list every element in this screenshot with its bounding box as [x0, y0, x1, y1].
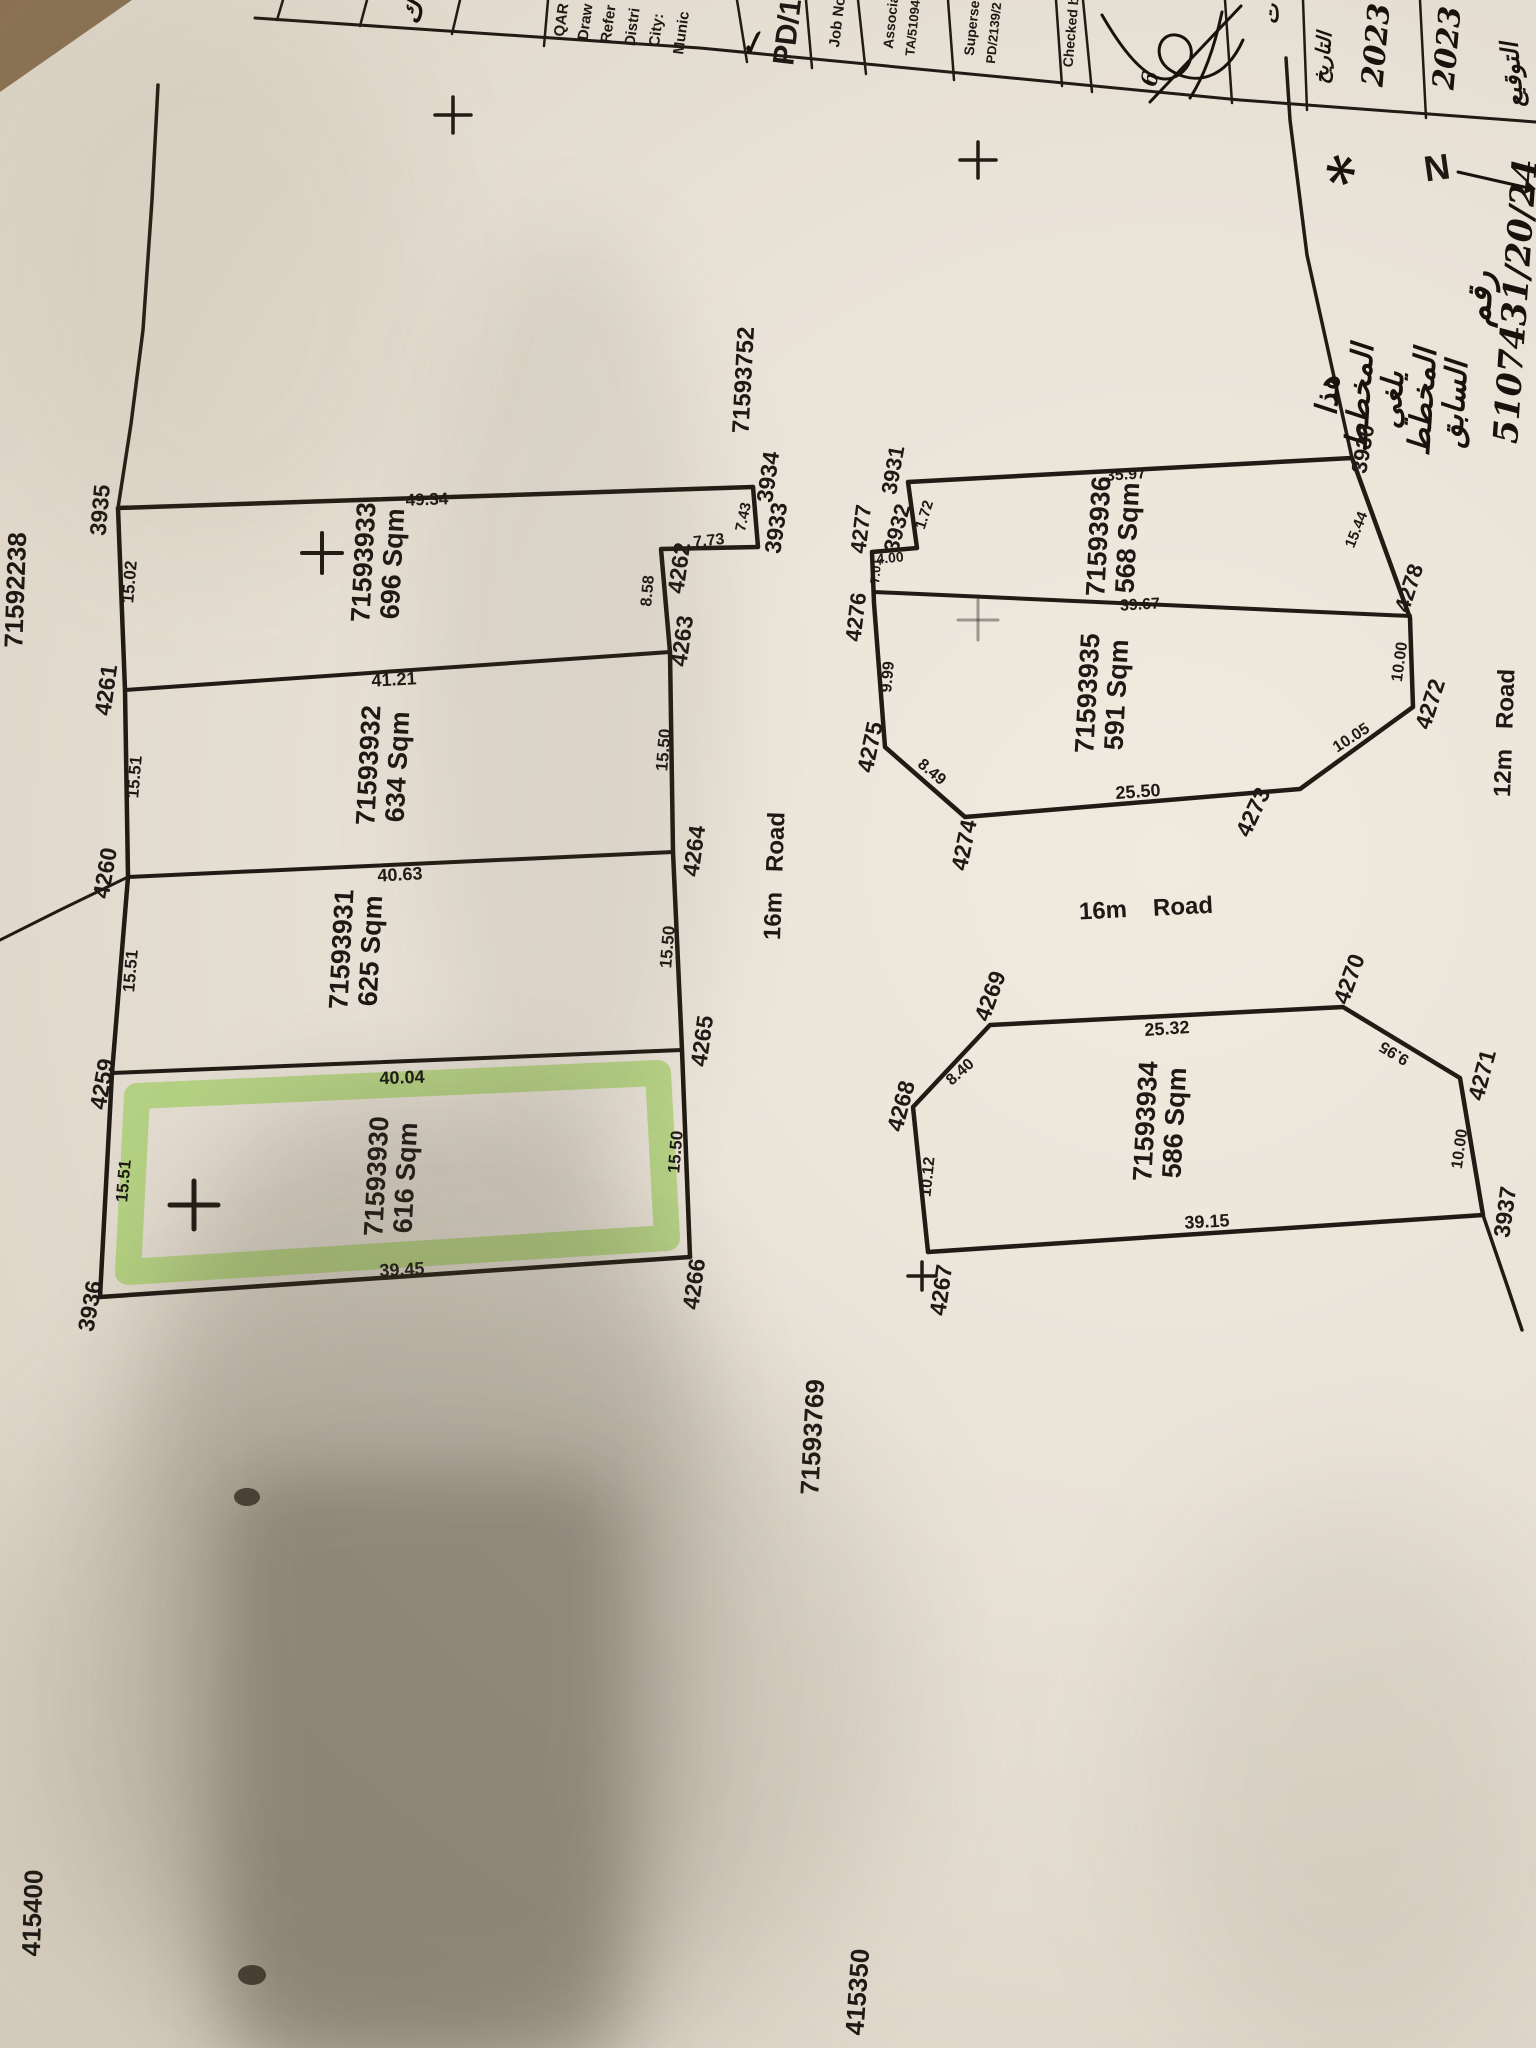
- handwritten-year-2: 2023: [1429, 5, 1468, 91]
- west-boundary-extension: [118, 85, 158, 508]
- title-block-divider-8: [948, 0, 954, 80]
- dimension-15-50-2: 15.50: [657, 925, 679, 969]
- title-block-divider-2: [360, 0, 367, 26]
- dimension-49-34: 49.34: [405, 490, 448, 509]
- corner-point-3935: 3935: [86, 483, 115, 536]
- survey-plan-linework: [0, 0, 1536, 2048]
- handwritten-mark-3: ت: [1259, 3, 1284, 26]
- corner-point-4276: 4276: [841, 591, 870, 642]
- title-block-divider-13: [1420, 0, 1426, 118]
- parcel-ref-71593752: 71593752: [729, 326, 760, 434]
- dimension-41-21: 41.21: [371, 669, 417, 690]
- dimension-15-51-2: 15.51: [120, 949, 142, 993]
- plot-number-71593933-696-sqm: 71593933 696 Sqm: [346, 502, 409, 625]
- dimension-8-58: 8.58: [639, 575, 659, 607]
- title-block-divider-10: [1083, 0, 1092, 92]
- dimension-40-04: 40.04: [379, 1068, 425, 1089]
- dimension-15-50-3: 15.50: [665, 1130, 687, 1174]
- dimension-40-63: 40.63: [377, 864, 423, 885]
- grid-ref-415350: 415350: [841, 1948, 875, 2036]
- road-label-road: Road: [1152, 893, 1213, 922]
- punch-hole-1: [234, 1488, 260, 1506]
- handwritten-year-1: 2023: [1358, 2, 1397, 88]
- corner-point-4277: 4277: [846, 503, 875, 554]
- title-block-divider-3: [452, 0, 460, 34]
- handwritten-date-word: التاريخ: [1310, 31, 1336, 85]
- dimension-25-50: 25.50: [1115, 781, 1161, 803]
- plot-number-71593930-616-sqm: 71593930 616 Sqm: [359, 1116, 422, 1239]
- dimension-39-15: 39.15: [1184, 1211, 1230, 1232]
- dimension-15-50: 15.50: [653, 728, 675, 772]
- road-label-12m-road: 12m Road: [1490, 669, 1520, 798]
- dimension-15-51-3: 15.51: [113, 1159, 135, 1203]
- dimension-9-99: 9.99: [879, 661, 899, 693]
- grid-ref-415400: 415400: [18, 1869, 49, 1957]
- parcel-ref-71593769: 71593769: [796, 1379, 830, 1496]
- plot-number-71593934-586-sqm: 71593934 586 Sqm: [1128, 1061, 1191, 1184]
- photo-of-survey-plan-document: QARDrawReferDistriCity:MunicPD/1Job NoAs…: [0, 0, 1536, 2048]
- dimension-15-51: 15.51: [124, 755, 146, 799]
- dimension-39-67: 39.67: [1120, 596, 1161, 615]
- plot-number-71593936-568-sqm: 71593936 568 Sqm: [1081, 476, 1144, 599]
- dimension-7-73: 7.73: [693, 532, 726, 552]
- plot-number-71593931-625-sqm: 71593931 625 Sqm: [324, 889, 387, 1012]
- grid-ref-71592238: 71592238: [0, 532, 32, 649]
- road-label-16m-road: 16m Road: [760, 812, 790, 941]
- plot-number-71593932-634-sqm: 71593932 634 Sqm: [351, 705, 414, 828]
- handwritten-signature-word: التوقيع: [1496, 41, 1527, 108]
- dimension-39-45: 39.45: [379, 1259, 425, 1280]
- dimension-25-32: 25.32: [1144, 1018, 1190, 1040]
- dimension-7-01: 7.01: [868, 558, 884, 584]
- arabic-note-line-1: هذا المخطط يلغي المخطط السابق: [1308, 323, 1477, 478]
- road-label-16m: 16m: [1078, 897, 1127, 925]
- north-label: N: [1421, 147, 1452, 188]
- dimension-15-02: 15.02: [119, 560, 141, 604]
- plot-number-71593935-591-sqm: 71593935 591 Sqm: [1070, 633, 1133, 756]
- punch-hole-2: [238, 1965, 266, 1985]
- title-block-divider-1: [277, 0, 283, 20]
- title-block-divider-12: [1303, 0, 1307, 110]
